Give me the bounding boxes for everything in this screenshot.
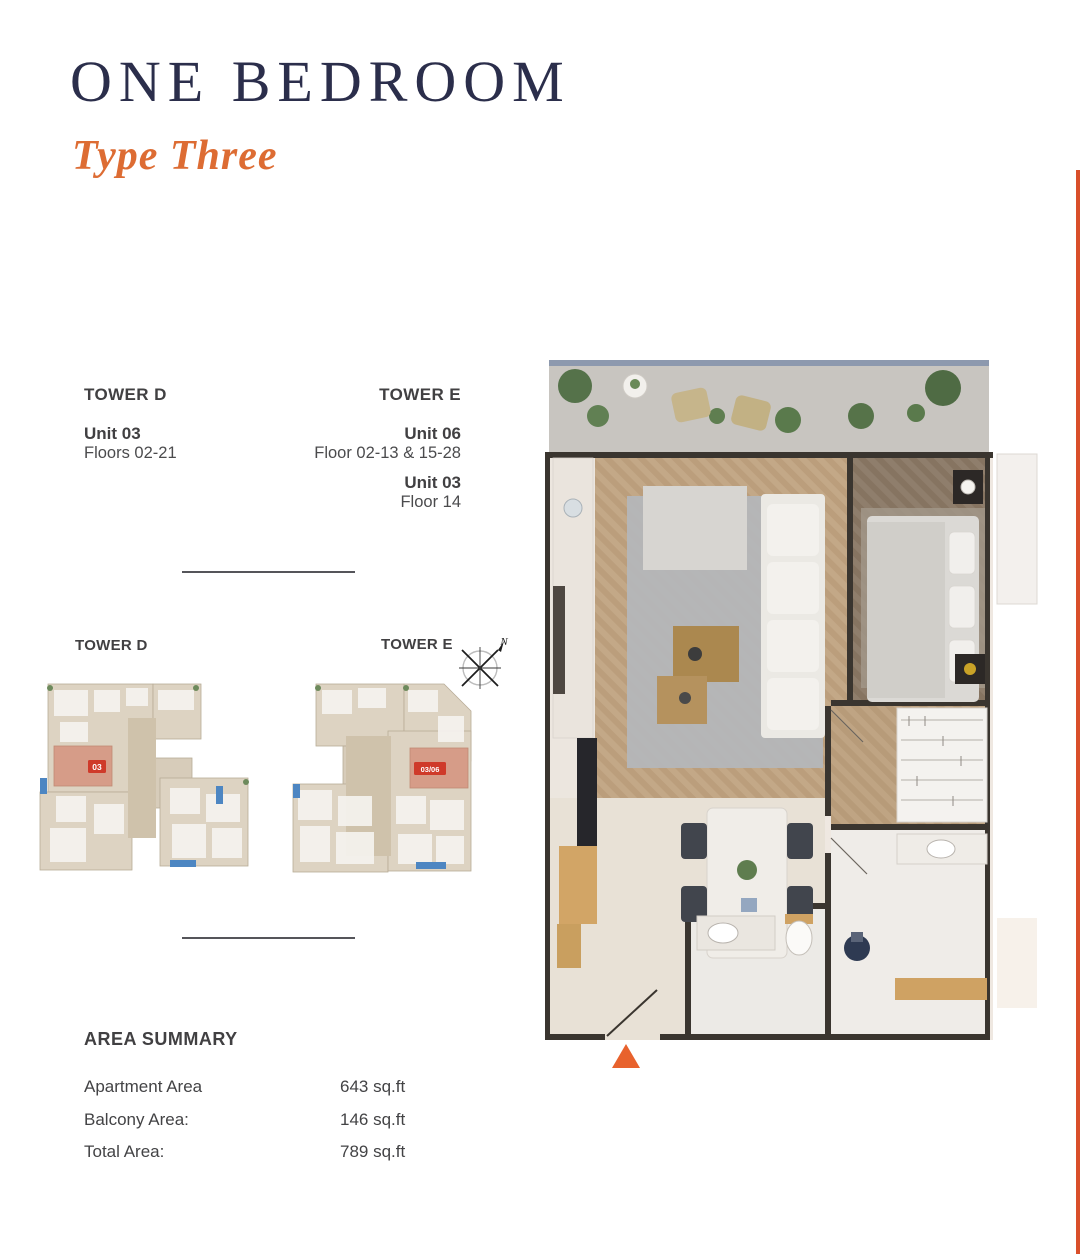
tower-e-name: TOWER E	[261, 386, 461, 403]
tower-e-unit-badge-label: 03/06	[421, 765, 440, 774]
tower-e-floors-2: Floor 14	[261, 494, 461, 511]
compass-north-label: N	[499, 636, 508, 648]
apartment-floor-plan	[545, 358, 1040, 1070]
page-subtitle: Type Three	[72, 132, 278, 180]
area-row-label: Apartment Area	[84, 1077, 202, 1097]
pillow	[949, 586, 975, 628]
tower-d-floors: Floors 02-21	[84, 445, 177, 462]
decor-icon	[964, 663, 976, 675]
guest-bathroom	[697, 914, 813, 955]
sink-basin	[708, 923, 738, 943]
cooktop	[577, 738, 597, 846]
brochure-page: ONE BEDROOM Type Three TOWER D Unit 03 F…	[0, 0, 1080, 1254]
wardrobe	[897, 708, 987, 822]
dining-chair	[787, 823, 813, 859]
kitchen-cabinet	[559, 846, 597, 924]
tower-e-info: TOWER E Unit 06 Floor 02-13 & 15-28 Unit…	[261, 386, 461, 510]
tree-icon	[925, 370, 961, 406]
area-row-value: 146 sq.ft	[340, 1110, 405, 1130]
tower-d-unit: Unit 03	[84, 425, 177, 442]
tower-e-unit-1: Unit 06	[261, 425, 461, 442]
divider-top	[182, 571, 355, 573]
area-row-value: 643 sq.ft	[340, 1077, 405, 1097]
keyplan-tower-e: 03/06	[288, 676, 473, 881]
shower-bench	[895, 978, 987, 1000]
page-title: ONE BEDROOM	[70, 48, 571, 115]
kitchen	[553, 458, 597, 968]
sink-basin	[927, 840, 955, 858]
plant-icon	[737, 860, 757, 880]
entry-arrow-icon	[612, 1044, 640, 1068]
sofa-chaise	[643, 486, 747, 570]
toilet	[786, 921, 812, 955]
living-room-furniture	[627, 486, 825, 768]
pillow	[949, 532, 975, 574]
area-row-label: Total Area:	[84, 1142, 164, 1162]
tower-d-name: TOWER D	[84, 386, 177, 403]
balcony-terrace	[549, 360, 989, 452]
tower-d-info: TOWER D Unit 03 Floors 02-21	[84, 386, 177, 462]
tower-e-unit-2: Unit 03	[261, 474, 461, 491]
adjacent-area	[997, 918, 1037, 1008]
area-row-label: Balcony Area:	[84, 1110, 189, 1130]
adjacent-balcony-strip	[997, 454, 1037, 604]
lamp-icon	[961, 480, 975, 494]
keyplan-tower-d-label: TOWER D	[75, 637, 148, 654]
keyplan-tower-e-label: TOWER E	[381, 636, 453, 653]
coffee-table	[673, 626, 739, 682]
tower-e-floors-1: Floor 02-13 & 15-28	[261, 445, 461, 462]
tree-icon	[558, 369, 592, 403]
area-summary-heading: AREA SUMMARY	[84, 1029, 238, 1050]
plant-icon	[848, 403, 874, 429]
page-edge-accent-strip	[1076, 170, 1080, 1254]
plant-icon	[775, 407, 801, 433]
area-row-value: 789 sq.ft	[340, 1142, 405, 1162]
tower-d-unit-badge-label: 03	[92, 762, 102, 772]
divider-bottom	[182, 937, 355, 939]
keyplan-tower-d: 03	[20, 678, 255, 883]
kitchen-sink	[564, 499, 582, 517]
dining-chair	[681, 823, 707, 859]
